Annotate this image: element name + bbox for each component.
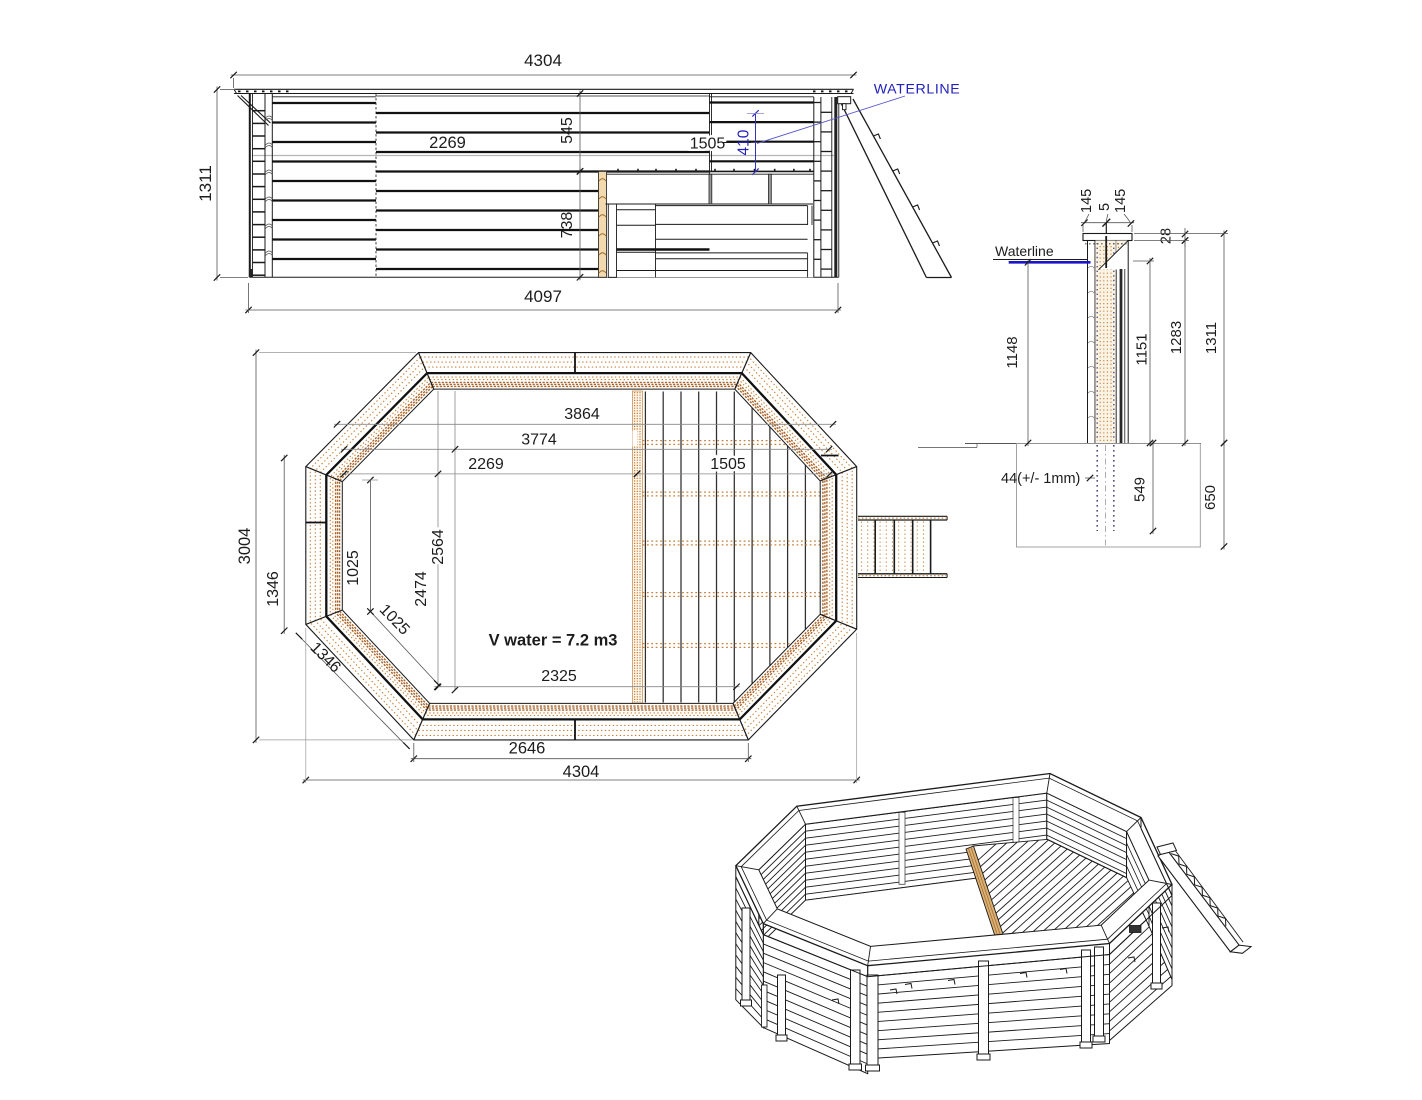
- svg-text:WATERLINE: WATERLINE: [874, 82, 961, 98]
- svg-text:2325: 2325: [541, 668, 577, 685]
- svg-text:3004: 3004: [236, 528, 254, 565]
- svg-text:1148: 1148: [1004, 336, 1021, 368]
- svg-text:3774: 3774: [521, 432, 557, 449]
- svg-text:44(+/- 1mm): 44(+/- 1mm): [1001, 471, 1080, 487]
- svg-text:1346: 1346: [265, 571, 282, 607]
- svg-text:28: 28: [1159, 228, 1175, 244]
- svg-text:2474: 2474: [413, 571, 430, 607]
- svg-text:410: 410: [736, 129, 753, 155]
- svg-text:145: 145: [1079, 189, 1095, 213]
- svg-text:Waterline: Waterline: [995, 243, 1054, 259]
- svg-text:2269: 2269: [429, 134, 466, 152]
- svg-text:1283: 1283: [1168, 321, 1185, 354]
- svg-text:4304: 4304: [524, 51, 562, 70]
- svg-text:1311: 1311: [196, 165, 215, 202]
- svg-text:5: 5: [1097, 203, 1113, 211]
- svg-text:545: 545: [559, 117, 576, 144]
- svg-text:1505: 1505: [710, 456, 746, 473]
- svg-text:1151: 1151: [1134, 333, 1151, 365]
- svg-text:2646: 2646: [509, 740, 546, 758]
- svg-text:2564: 2564: [430, 529, 447, 565]
- svg-text:2269: 2269: [468, 456, 504, 473]
- svg-text:V water = 7.2 m3: V water = 7.2 m3: [489, 632, 618, 650]
- svg-text:1311: 1311: [1203, 322, 1220, 354]
- svg-text:145: 145: [1113, 189, 1129, 213]
- svg-text:650: 650: [1202, 485, 1219, 510]
- svg-text:1505: 1505: [690, 135, 726, 152]
- svg-text:3864: 3864: [564, 406, 600, 423]
- svg-text:549: 549: [1132, 477, 1149, 502]
- svg-text:4304: 4304: [563, 763, 600, 781]
- svg-text:738: 738: [559, 212, 576, 239]
- svg-text:1025: 1025: [345, 550, 362, 586]
- svg-text:4097: 4097: [524, 287, 562, 306]
